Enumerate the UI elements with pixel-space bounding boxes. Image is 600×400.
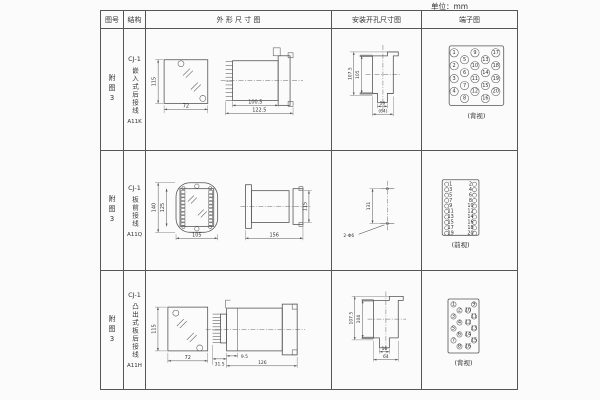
terminal-diagram-a11h: 12345678910111213141516 (背视) [422, 271, 517, 389]
svg-text:13: 13 [482, 57, 488, 63]
terminal-pins: 1234567891011121314151617181920 [450, 49, 500, 103]
outline-cell-row2: 140 125 105 [146, 151, 332, 271]
structure-cell-row1: CJ-1 嵌入式后接线 A11K [124, 29, 146, 151]
header-outline: 外 形 尺 寸 图 [146, 11, 332, 29]
svg-text:12: 12 [472, 89, 478, 95]
outline-cell-row1: 115 72 100.5 [146, 29, 332, 151]
svg-text:2: 2 [453, 63, 456, 69]
spec-table: 图号 结构 外 形 尺 寸 图 安装开孔尺寸图 端子图 附图3 CJ-1 嵌入式… [100, 10, 518, 390]
dim-label: 104 [356, 315, 362, 324]
terminal-cell-row2: 1357911131517192468101214161820 (前视) [422, 151, 517, 271]
dim-label: 131 [366, 202, 372, 211]
dim-label: 100.5 [248, 100, 262, 106]
model-label: CJ-1 [128, 291, 141, 299]
svg-text:20: 20 [467, 230, 473, 236]
svg-text:8: 8 [458, 343, 461, 349]
dim-label: 122.5 [252, 108, 266, 114]
header-fig-no: 图号 [101, 11, 124, 29]
dim-label: 105 [355, 70, 361, 79]
install-drawing-a11k: 107.5 105 16 (64) [332, 29, 421, 150]
svg-text:1: 1 [452, 301, 455, 307]
heatsink-fins [226, 62, 233, 101]
svg-text:15: 15 [471, 337, 477, 343]
front-view: 115 72 [152, 60, 208, 114]
terminal-pins: 12345678910111213141516 [451, 301, 477, 349]
svg-text:3: 3 [452, 313, 455, 319]
model-code: A11Q [127, 232, 142, 238]
terminal-strip-right [209, 191, 213, 226]
dim-label: 107.5 [347, 67, 353, 80]
svg-text:10: 10 [472, 63, 478, 69]
view-label: (背视) [467, 111, 485, 120]
install-drawing-a11h: 107.5 104 16 64 [332, 271, 421, 389]
install-cell-row3: 107.5 104 16 64 [332, 271, 422, 389]
fig-cell-row1: 附图3 [101, 29, 124, 151]
view-label: (前视) [452, 240, 470, 249]
svg-text:8: 8 [463, 96, 466, 102]
dim-label: 31.5 [215, 361, 225, 367]
terminal-diagram-a11k: 1234567891011121314151617181920 (背视) [422, 29, 517, 150]
svg-text:5: 5 [452, 325, 455, 331]
dim-label: 72 [185, 355, 191, 361]
structure-label: 板前接线 [130, 196, 140, 228]
model-code: A11H [127, 363, 142, 369]
dim-label: 115 [302, 202, 308, 211]
structure-cell-row3: CJ-1 凸出式板后接线 A11H [124, 271, 146, 389]
outline-cell-row3: 115 72 [146, 271, 332, 389]
svg-text:19: 19 [448, 230, 454, 236]
heatsink-fins [213, 314, 221, 343]
dim-label: 140 [152, 203, 158, 212]
svg-text:11: 11 [472, 76, 478, 82]
svg-text:4: 4 [453, 89, 456, 95]
structure-label: 凸出式板后接线 [130, 303, 140, 359]
outline-drawing-a11h: 115 72 [146, 271, 331, 389]
model-code: A11K [127, 119, 141, 125]
header-install: 安装开孔尺寸图 [332, 11, 422, 29]
terminal-cell-row3: 12345678910111213141516 (背视) [422, 271, 517, 389]
header-terminal: 端子图 [422, 11, 517, 29]
dim-label: 107.5 [348, 312, 354, 325]
svg-text:20: 20 [493, 89, 499, 95]
dim-label: 9.5 [241, 354, 248, 360]
svg-text:16: 16 [482, 96, 488, 102]
svg-text:9: 9 [472, 301, 475, 307]
svg-text:1: 1 [453, 50, 456, 56]
outline-drawing-a11q: 140 125 105 [146, 151, 331, 270]
side-view: 100.5 122.5 [221, 48, 303, 115]
dim-label: 125 [160, 203, 166, 212]
terminal-cell-row1: 1234567891011121314151617181920 (背视) [422, 29, 517, 151]
dim-label: 115 [152, 77, 158, 86]
svg-text:13: 13 [471, 325, 477, 331]
side-view: 31.5 9.5 126 [206, 300, 305, 368]
svg-text:7: 7 [463, 83, 466, 89]
svg-text:15: 15 [482, 83, 488, 89]
fig-label: 附图3 [107, 74, 117, 105]
structure-cell-row2: CJ-1 板前接线 A11Q [124, 151, 146, 271]
side-view: 156 115 [240, 185, 311, 241]
svg-text:9: 9 [473, 50, 476, 56]
terminal-strip-left [181, 191, 185, 226]
svg-text:2: 2 [458, 307, 461, 313]
fig-cell-row2: 附图3 [101, 151, 124, 271]
svg-text:5: 5 [463, 57, 466, 63]
front-view: 140 125 105 [152, 183, 218, 241]
holes-label: 2-Φ6 [343, 233, 354, 239]
svg-text:6: 6 [458, 331, 461, 337]
outline-drawing-a11k: 115 72 100.5 [146, 29, 331, 150]
svg-text:14: 14 [482, 70, 488, 76]
svg-text:3: 3 [453, 76, 456, 82]
svg-text:4: 4 [458, 319, 461, 325]
terminal-pins: 1357911131517192468101214161820 [445, 181, 477, 236]
install-cell-row2: 131 2-Φ6 [332, 151, 422, 271]
install-drawing-a11q: 131 2-Φ6 [332, 151, 421, 270]
header-structure: 结构 [124, 11, 146, 29]
dim-label: 156 [269, 233, 278, 239]
svg-text:18: 18 [493, 63, 499, 69]
dim-label: 126 [258, 360, 267, 366]
fig-label: 附图3 [107, 195, 117, 226]
install-cell-row1: 107.5 105 16 (64) [332, 29, 422, 151]
dim-label: 64 [383, 354, 389, 360]
svg-text:7: 7 [452, 337, 455, 343]
svg-text:17: 17 [493, 50, 499, 56]
dim-label: 115 [151, 324, 157, 333]
svg-text:19: 19 [493, 76, 499, 82]
dim-label: (64) [378, 109, 387, 115]
svg-text:16: 16 [465, 343, 471, 349]
fig-cell-row3: 附图3 [101, 271, 124, 389]
document-page: 单位：mm 图号 结构 外 形 尺 寸 图 安装开孔尺寸图 端子图 附图3 CJ… [0, 0, 600, 400]
model-label: CJ-1 [128, 55, 141, 63]
model-label: CJ-1 [128, 184, 141, 192]
fig-label: 附图3 [107, 315, 117, 346]
front-view: 115 72 [151, 307, 207, 363]
svg-text:6: 6 [463, 70, 466, 76]
dim-label: 105 [192, 233, 201, 239]
dim-label: 72 [183, 103, 189, 109]
structure-label: 嵌入式后接线 [130, 67, 140, 115]
terminal-diagram-a11q: 1357911131517192468101214161820 (前视) [422, 151, 517, 270]
view-label: (背视) [454, 358, 472, 367]
svg-text:11: 11 [471, 313, 477, 319]
